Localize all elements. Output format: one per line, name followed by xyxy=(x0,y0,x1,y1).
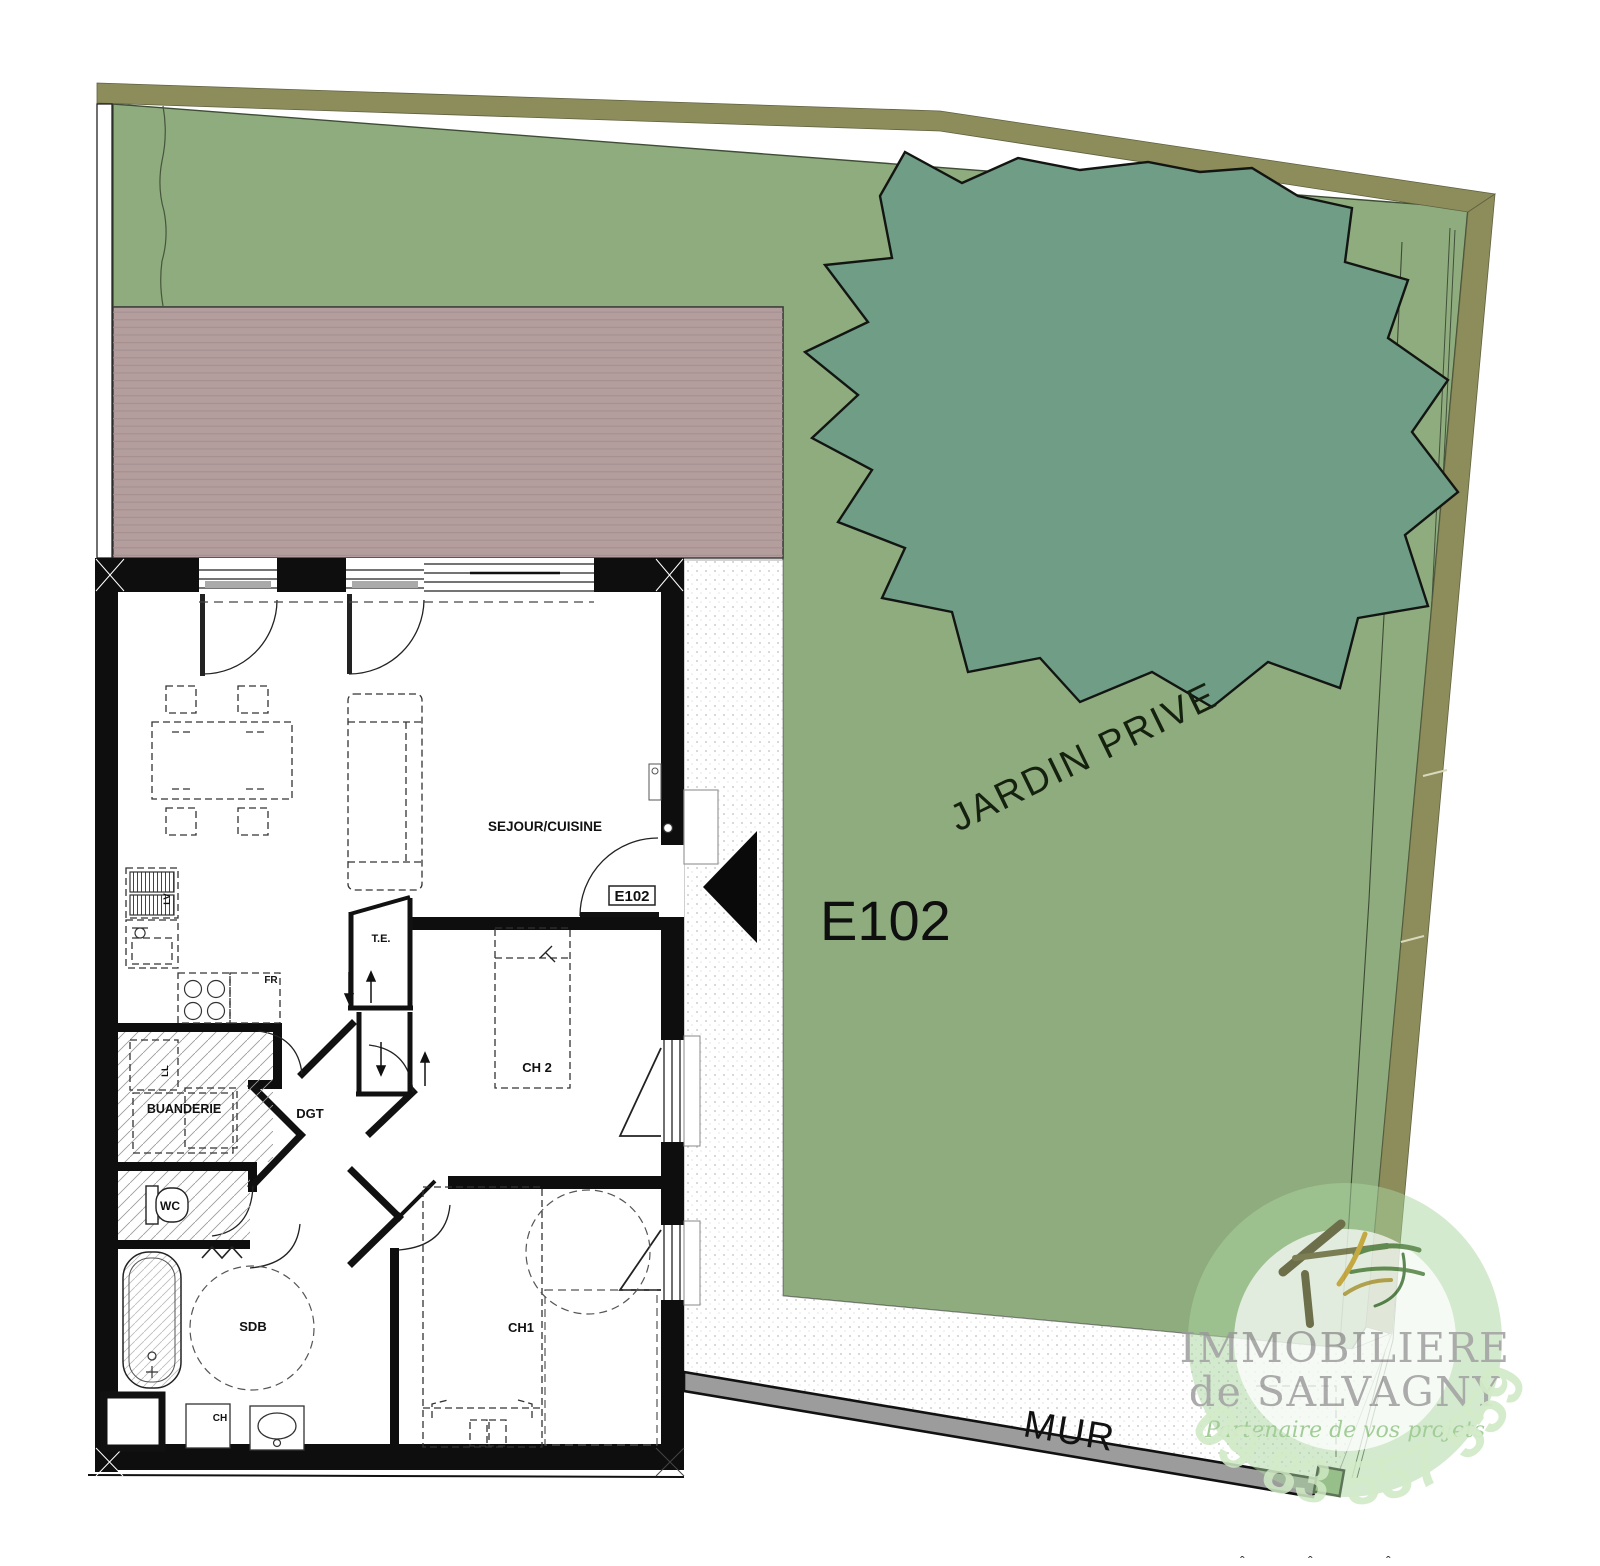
label-ch-heater: CH xyxy=(213,1413,227,1424)
laundry-room xyxy=(118,1032,273,1162)
label-ch2: CH 2 xyxy=(522,1060,552,1075)
label-sdb: SDB xyxy=(239,1319,266,1334)
apartment-floor xyxy=(95,558,684,1472)
terrace-decking xyxy=(113,307,783,558)
water-heater-box xyxy=(186,1404,230,1448)
door-tag-label: E102 xyxy=(614,888,649,905)
washbasin xyxy=(250,1406,304,1450)
label-lv: LV xyxy=(162,893,173,905)
agency-watermark: IMMOBILIERE de SALVAGNY Partenaire de vo… xyxy=(1178,1183,1542,1519)
svg-text:ˆ: ˆ xyxy=(1308,1553,1313,1566)
garden-unit-label: E102 xyxy=(820,889,951,952)
label-fr: FR xyxy=(264,975,278,986)
apartment-e102: E102 xyxy=(88,558,757,1477)
label-wc: WC xyxy=(160,1199,180,1213)
label-ch1: CH1 xyxy=(508,1320,534,1335)
svg-text:ˆ: ˆ xyxy=(1240,1553,1245,1566)
label-ll: LL xyxy=(160,1065,171,1077)
svg-text:ˆ: ˆ xyxy=(1386,1553,1391,1566)
label-sejour: SEJOUR/CUISINE xyxy=(488,819,602,834)
wc-room xyxy=(118,1171,250,1240)
door-handle-icon xyxy=(664,824,673,833)
floorplan-svg: JARDIN PRIVE E102 MUR xyxy=(0,0,1600,1566)
entry-step xyxy=(684,790,718,864)
label-te: T.E. xyxy=(372,933,391,945)
bottom-edge-cut-marks: ˆ ˆ ˆ xyxy=(1240,1553,1391,1566)
floorplan-page: JARDIN PRIVE E102 MUR xyxy=(0,0,1600,1566)
label-dgt: DGT xyxy=(296,1106,324,1121)
label-buanderie: BUANDERIE xyxy=(147,1102,221,1116)
agency-name-line1: IMMOBILIERE xyxy=(1180,1324,1511,1372)
left-fence-strip xyxy=(97,104,112,558)
